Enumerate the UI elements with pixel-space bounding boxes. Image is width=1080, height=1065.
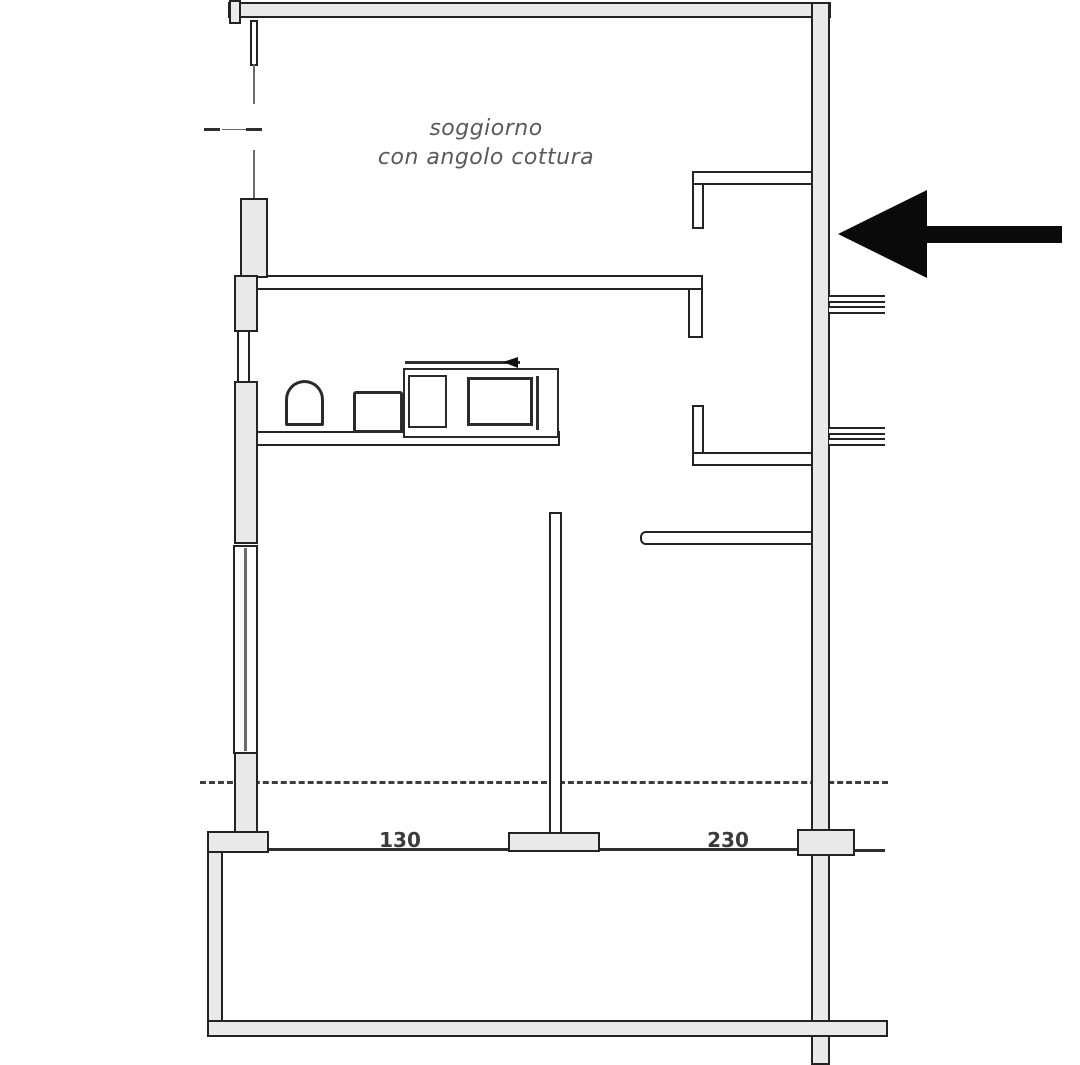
door-axis-dash-right — [246, 128, 262, 131]
room-label-line2: con angolo cottura — [316, 143, 656, 172]
room-label: soggiorno con angolo cottura — [316, 114, 656, 172]
wall-stub-middle — [688, 288, 703, 338]
wall-left-mid-1 — [234, 275, 258, 332]
window-large-glazing-line — [244, 548, 247, 751]
wall-bathroom-top — [255, 275, 703, 290]
wall-partition — [549, 512, 562, 835]
wall-left-mid-2 — [234, 381, 258, 544]
wall-bedroom-top — [640, 531, 813, 545]
room-label-line1: soggiorno — [316, 114, 656, 143]
wall-corridor-bottom — [692, 452, 816, 466]
arrow-left-icon — [838, 190, 1062, 278]
window-small — [237, 330, 250, 383]
pillar-block-left — [207, 831, 269, 853]
balcony-wall-bottom — [207, 1020, 888, 1037]
dimension-label-230: 230 — [702, 828, 754, 852]
ext-wall-rail-1b — [829, 306, 885, 314]
wall-niche-top — [692, 171, 818, 185]
fixture-sink-icon — [408, 375, 447, 428]
ext-wall-rail-1a — [829, 295, 885, 303]
pillar-block-right — [797, 829, 855, 856]
wall-left-door-jamb — [250, 20, 258, 66]
door-glazing-line-upper — [253, 64, 255, 104]
counter-corner-mark-icon — [503, 357, 518, 368]
balcony-top-edge-right — [853, 849, 885, 852]
fixture-stove-icon — [467, 377, 533, 426]
wall-stub-upper — [692, 183, 704, 229]
wall-left-lower — [234, 752, 258, 833]
floor-plan: soggiorno con angolo cottura 130 230 — [0, 0, 1080, 1065]
wall-left-upper — [240, 198, 268, 278]
wall-right-main — [811, 2, 830, 1065]
door-axis-dash-left — [204, 128, 220, 131]
dimension-label-130: 130 — [374, 828, 426, 852]
door-glazing-line-lower — [253, 150, 255, 200]
partition-base-block — [508, 832, 600, 852]
counter-divider-line — [536, 376, 539, 430]
door-axis-dash-mid — [222, 129, 246, 130]
fixture-appliance-icon — [353, 391, 403, 433]
section-dashed-line — [200, 781, 888, 784]
wall-top-left-corner — [229, 0, 241, 24]
fixture-boiler-icon — [285, 380, 324, 426]
ext-wall-rail-2a — [829, 427, 885, 435]
wall-top — [228, 2, 831, 18]
wall-stub-lower — [692, 405, 704, 455]
balcony-wall-left — [207, 845, 223, 1037]
ext-wall-rail-2b — [829, 438, 885, 446]
